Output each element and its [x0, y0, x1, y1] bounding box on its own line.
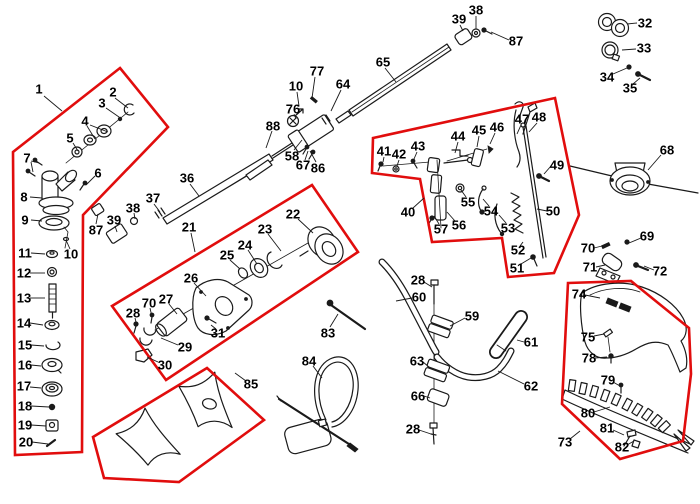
part-label-59: 59 [465, 309, 479, 324]
handlebar-assembly [382, 262, 521, 444]
part-label-13: 13 [17, 291, 31, 306]
region-blade-group [93, 368, 264, 482]
part-label-28: 28 [126, 306, 140, 321]
part-label-10: 10 [289, 79, 303, 94]
part-label-74: 74 [572, 287, 587, 302]
part-label-75: 75 [581, 330, 595, 345]
leader-line [477, 136, 479, 147]
screw-51 [531, 255, 536, 260]
part-label-83: 83 [321, 326, 335, 341]
bolt-28-top [431, 280, 438, 285]
part-label-31: 31 [211, 326, 225, 341]
part-label-53: 53 [501, 221, 515, 236]
leader-line [30, 323, 43, 325]
part-label-28: 28 [411, 273, 425, 288]
part-label-38: 38 [126, 201, 140, 216]
part-label-79: 79 [601, 373, 615, 388]
part-label-48: 48 [532, 110, 546, 125]
part-label-69: 69 [640, 229, 654, 244]
part-label-39: 39 [107, 213, 121, 228]
leader-line [596, 265, 605, 267]
bearing-4 [97, 125, 111, 137]
part-label-88: 88 [266, 119, 280, 134]
bolt-87 [482, 28, 486, 32]
leader-line [268, 234, 281, 251]
part-label-23: 23 [258, 222, 272, 237]
part-label-20: 20 [19, 435, 33, 450]
leader-line [161, 338, 178, 345]
lever-54 [479, 189, 483, 211]
leader-line [44, 96, 62, 111]
throttle-rod-50 [523, 126, 546, 258]
part-label-66: 66 [411, 389, 425, 404]
part-label-35: 35 [623, 81, 637, 96]
part-label-57: 57 [434, 222, 448, 237]
part-label-82: 82 [615, 440, 629, 455]
part-label-15: 15 [18, 338, 32, 353]
leader-line [191, 233, 195, 252]
part-label-1: 1 [35, 82, 42, 97]
leader-line [622, 49, 636, 50]
bolt-28-bottom [430, 423, 437, 428]
part-label-9: 9 [21, 213, 28, 228]
part-label-41: 41 [377, 144, 391, 159]
part-label-61: 61 [524, 335, 538, 350]
part-label-33: 33 [637, 41, 651, 56]
cable-adjuster-45 [471, 148, 484, 167]
snap-ring-2 [124, 104, 134, 115]
part-label-71: 71 [583, 260, 597, 275]
clamp-29 [144, 328, 156, 335]
leader-line [30, 387, 41, 388]
bar-clamp-59 [427, 315, 453, 338]
part-label-78: 78 [582, 351, 596, 366]
part-label-32: 32 [638, 16, 652, 31]
part-label-70: 70 [142, 296, 156, 311]
part-label-28: 28 [406, 422, 420, 437]
part-label-6: 6 [94, 166, 101, 181]
part-label-87: 87 [509, 34, 523, 49]
worm-shaft-13 [49, 284, 56, 312]
leader-line [190, 184, 199, 196]
leader-line [385, 68, 396, 82]
ball-38 [131, 218, 138, 225]
part-label-52: 52 [511, 243, 525, 258]
part-label-5: 5 [66, 131, 73, 146]
pin-70 [602, 242, 611, 248]
part-label-70: 70 [581, 241, 595, 256]
leader-line [491, 32, 509, 40]
leader-line [31, 345, 44, 346]
part-label-3: 3 [98, 96, 105, 111]
peg-46 [488, 146, 493, 153]
leader-line [31, 253, 45, 254]
part-label-73: 73 [558, 435, 572, 450]
part-label-16: 16 [18, 358, 32, 373]
screw-34 [627, 65, 631, 69]
part-label-80: 80 [581, 406, 595, 421]
leader-line [31, 406, 49, 407]
part-label-77: 77 [310, 64, 324, 79]
part-label-65: 65 [376, 55, 390, 70]
part-label-63: 63 [410, 354, 424, 369]
tube-nut-39 [454, 28, 473, 46]
shaft-clamp-assembly-71 [596, 240, 648, 284]
part-label-7: 7 [23, 151, 30, 166]
part-label-17: 17 [17, 379, 31, 394]
part-label-40: 40 [401, 205, 415, 220]
part-label-38: 38 [469, 3, 483, 18]
part-label-24: 24 [238, 238, 253, 253]
part-label-29: 29 [178, 340, 192, 355]
part-label-54: 54 [484, 204, 499, 219]
region-gear-head-group [13, 68, 168, 455]
part-label-27: 27 [159, 292, 173, 307]
part-label-26: 26 [184, 271, 198, 286]
part-label-4: 4 [81, 114, 89, 129]
leader-line [31, 425, 46, 426]
pin-77 [310, 97, 317, 103]
part-label-11: 11 [18, 246, 32, 261]
leader-line [613, 430, 624, 435]
part-label-62: 62 [524, 379, 538, 394]
nut-69 [625, 240, 629, 244]
part-label-10: 10 [64, 247, 78, 262]
part-label-49: 49 [550, 158, 564, 173]
leader-line [115, 98, 128, 108]
part-label-39: 39 [452, 12, 466, 27]
snap-ring-23 [267, 252, 282, 268]
leader-line [31, 162, 33, 172]
bar-clamp-66 [427, 388, 450, 407]
part-label-47: 47 [515, 112, 529, 127]
part-label-55: 55 [461, 195, 475, 210]
parts-diagram-canvas: 1234567891011121314151617181920873938373… [0, 0, 700, 504]
tri-blade [170, 364, 245, 435]
part-label-56: 56 [452, 218, 466, 233]
part-label-86: 86 [311, 161, 325, 176]
leader-line [298, 219, 313, 233]
part-label-42: 42 [392, 147, 406, 162]
leader-line [31, 365, 41, 366]
part-label-14: 14 [17, 316, 32, 331]
leader-line [490, 133, 495, 144]
trimmer-head-68 [570, 163, 698, 195]
part-label-76: 76 [286, 102, 300, 117]
part-label-72: 72 [653, 264, 667, 279]
part-label-36: 36 [180, 171, 194, 186]
pinion-gear-5 [72, 147, 82, 157]
leader-line [419, 430, 431, 434]
part-label-18: 18 [18, 399, 32, 414]
leader-line [627, 23, 637, 24]
part-label-25: 25 [220, 248, 234, 263]
part-label-2: 2 [109, 85, 116, 100]
ring-55 [456, 184, 464, 192]
leader-line [266, 131, 272, 148]
cutter-81 [627, 430, 636, 437]
part-label-68: 68 [660, 143, 674, 158]
part-label-64: 64 [336, 77, 351, 92]
part-label-67: 67 [296, 158, 310, 173]
part-label-60: 60 [412, 290, 426, 305]
leader-line [331, 90, 341, 111]
cutting-blades-85 [114, 364, 245, 467]
part-label-85: 85 [244, 377, 258, 392]
gear-shaft-parts-column [42, 251, 62, 447]
leader-line [613, 68, 627, 74]
part-label-37: 37 [146, 191, 160, 206]
part-label-87: 87 [89, 223, 103, 238]
washer-38 [472, 29, 480, 37]
part-label-8: 8 [20, 190, 27, 205]
leader-line [498, 371, 524, 384]
part-label-30: 30 [158, 358, 172, 373]
part-label-12: 12 [17, 266, 31, 281]
part-label-19: 19 [18, 418, 32, 433]
shaft-sleeve-27 [156, 307, 188, 337]
part-label-46: 46 [490, 120, 504, 135]
bolt-31 [205, 316, 209, 320]
part-label-22: 22 [286, 207, 300, 222]
part-label-51: 51 [510, 261, 524, 276]
part-label-84: 84 [302, 354, 317, 369]
leader-line [32, 442, 48, 444]
leader-line [106, 108, 119, 117]
part-label-43: 43 [411, 139, 425, 154]
part-label-50: 50 [546, 204, 560, 219]
part-label-44: 44 [451, 129, 466, 144]
part-label-21: 21 [182, 220, 196, 235]
shaft-end-64 [336, 111, 351, 123]
part-label-34: 34 [600, 70, 615, 85]
leader-line [30, 197, 42, 198]
part-label-81: 81 [600, 421, 614, 436]
parts-diagram-page: 1234567891011121314151617181920873938373… [0, 0, 700, 504]
leader-line [455, 142, 458, 153]
leader-line [312, 77, 315, 98]
part-label-45: 45 [472, 123, 486, 138]
safety-guard-74 [562, 283, 694, 453]
